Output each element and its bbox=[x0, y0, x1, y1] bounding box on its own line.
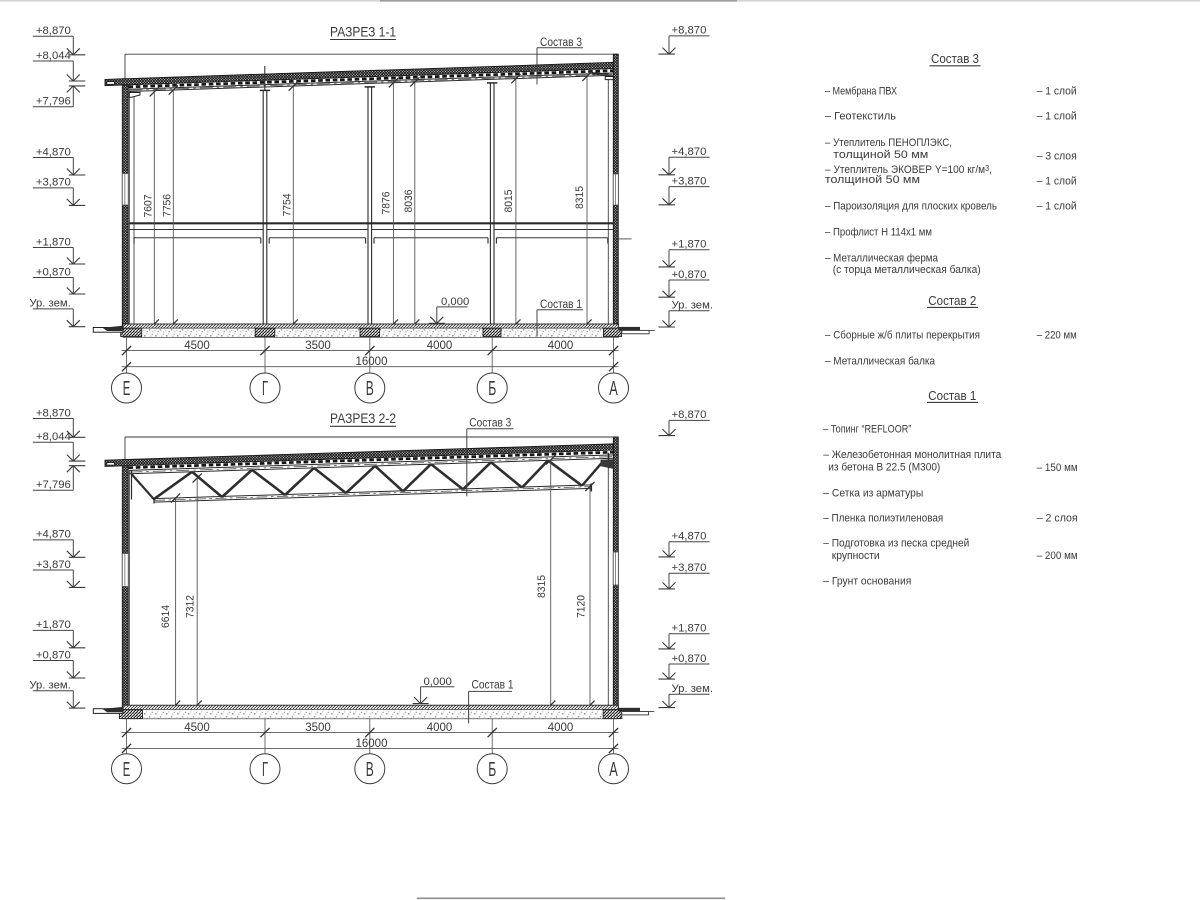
svg-text:7312: 7312 bbox=[184, 595, 196, 618]
svg-text:+3,870: +3,870 bbox=[36, 559, 71, 571]
svg-text:+0,870: +0,870 bbox=[672, 653, 707, 665]
svg-text:+1,870: +1,870 bbox=[36, 619, 71, 631]
svg-text:Состав 3: Состав 3 bbox=[540, 37, 582, 49]
svg-text:РАЗРЕЗ 1-1: РАЗРЕЗ 1-1 bbox=[330, 25, 396, 40]
svg-text:– 1 слой: – 1 слой bbox=[1037, 176, 1077, 188]
svg-text:4000: 4000 bbox=[427, 722, 453, 734]
svg-text:Г: Г bbox=[262, 759, 268, 781]
svg-text:+1,870: +1,870 bbox=[672, 623, 707, 635]
svg-text:толщиной 50 мм: толщиной 50 мм bbox=[833, 149, 928, 161]
svg-text:– Подготовка из песка средней: – Подготовка из песка средней bbox=[823, 537, 969, 549]
svg-text:Ур. зем.: Ур. зем. bbox=[29, 298, 70, 310]
svg-text:7876: 7876 bbox=[381, 192, 393, 215]
svg-text:0,000: 0,000 bbox=[441, 296, 469, 308]
svg-text:4500: 4500 bbox=[184, 340, 210, 352]
svg-text:– 1 слой: – 1 слой bbox=[1037, 111, 1077, 123]
svg-text:8036: 8036 bbox=[403, 190, 415, 213]
svg-text:– Профлист Н 114х1 мм: – Профлист Н 114х1 мм bbox=[825, 227, 932, 239]
svg-text:+7,796: +7,796 bbox=[36, 479, 71, 491]
svg-text:+8,044: +8,044 bbox=[36, 431, 71, 443]
svg-text:8315: 8315 bbox=[536, 575, 548, 598]
svg-text:крупности: крупности bbox=[832, 550, 880, 562]
svg-text:Б: Б bbox=[488, 759, 496, 781]
svg-text:– 3 слоя: – 3 слоя bbox=[1037, 151, 1077, 163]
svg-text:А: А bbox=[609, 378, 618, 400]
svg-text:+8,044: +8,044 bbox=[36, 50, 71, 62]
svg-text:РАЗРЕЗ 2-2: РАЗРЕЗ 2-2 bbox=[330, 411, 396, 426]
svg-text:0,000: 0,000 bbox=[424, 676, 452, 688]
svg-text:4000: 4000 bbox=[427, 340, 453, 352]
svg-text:– 1 слой: – 1 слой bbox=[1037, 201, 1077, 213]
svg-text:– Сборные ж/б плиты перекрытия: – Сборные ж/б плиты перекрытия bbox=[825, 330, 980, 342]
svg-text:8315: 8315 bbox=[574, 186, 586, 209]
svg-text:Состав 1: Состав 1 bbox=[540, 299, 582, 311]
svg-text:+4,870: +4,870 bbox=[672, 531, 707, 543]
svg-text:Г: Г bbox=[262, 378, 268, 400]
svg-text:7120: 7120 bbox=[575, 595, 587, 618]
svg-text:– Металлическая ферма: – Металлическая ферма bbox=[825, 252, 939, 264]
svg-text:Е: Е bbox=[123, 378, 131, 400]
svg-text:Состав 2: Состав 2 bbox=[928, 293, 976, 308]
svg-text:Б: Б bbox=[488, 378, 496, 400]
svg-text:+8,870: +8,870 bbox=[36, 407, 71, 419]
svg-text:– 220 мм: – 220 мм bbox=[1037, 330, 1077, 342]
svg-text:4000: 4000 bbox=[548, 340, 574, 352]
svg-text:Ур. зем.: Ур. зем. bbox=[672, 300, 713, 312]
svg-text:8015: 8015 bbox=[503, 190, 515, 213]
svg-text:– Геотекстиль: – Геотекстиль bbox=[825, 111, 896, 123]
svg-text:+8,870: +8,870 bbox=[672, 25, 707, 37]
svg-text:+4,870: +4,870 bbox=[36, 529, 71, 541]
svg-text:+3,870: +3,870 bbox=[672, 175, 707, 187]
svg-text:7756: 7756 bbox=[161, 194, 173, 217]
svg-text:– 150 мм: – 150 мм bbox=[1037, 462, 1078, 474]
svg-text:Е: Е bbox=[123, 759, 131, 781]
svg-text:Состав 1: Состав 1 bbox=[472, 679, 514, 691]
svg-text:В: В bbox=[366, 759, 374, 781]
svg-text:Состав 3: Состав 3 bbox=[469, 418, 511, 430]
svg-text:+1,870: +1,870 bbox=[36, 236, 71, 248]
svg-text:– Железобетонная монолитная п: – Железобетонная монолитная плита bbox=[823, 449, 1002, 461]
svg-text:(с торца металлическая балка): (с торца металлическая балка) bbox=[833, 264, 981, 276]
svg-text:А: А bbox=[609, 759, 618, 781]
svg-text:+0,870: +0,870 bbox=[36, 649, 71, 661]
svg-text:+3,870: +3,870 bbox=[36, 177, 71, 189]
svg-text:– 2 слоя: – 2 слоя bbox=[1037, 512, 1078, 524]
svg-text:+0,870: +0,870 bbox=[36, 266, 71, 278]
svg-text:Состав 3: Состав 3 bbox=[931, 51, 979, 66]
svg-text:+4,870: +4,870 bbox=[36, 146, 71, 158]
svg-text:+4,870: +4,870 bbox=[672, 146, 707, 158]
svg-text:– Грунт основания: – Грунт основания bbox=[823, 576, 911, 588]
svg-text:– Мембрана ПВХ: – Мембрана ПВХ bbox=[825, 86, 898, 98]
svg-text:– Сетка из арматуры: – Сетка из арматуры bbox=[823, 487, 923, 499]
svg-text:– Металлическая балка: – Металлическая балка bbox=[825, 356, 936, 368]
svg-text:Состав 1: Состав 1 bbox=[928, 388, 976, 403]
svg-text:– Утеплитель ПЕНОПЛЭКС,: – Утеплитель ПЕНОПЛЭКС, bbox=[825, 137, 952, 149]
svg-text:+8,870: +8,870 bbox=[36, 25, 71, 37]
svg-text:4000: 4000 bbox=[548, 722, 574, 734]
svg-text:+8,870: +8,870 bbox=[672, 409, 707, 421]
svg-text:7754: 7754 bbox=[281, 194, 293, 217]
svg-text:+0,870: +0,870 bbox=[672, 269, 707, 281]
svg-text:6614: 6614 bbox=[160, 605, 172, 628]
svg-text:– Пароизоляция для плоских кро: – Пароизоляция для плоских кровель bbox=[825, 201, 997, 213]
svg-text:толщиной 50 мм: толщиной 50 мм bbox=[825, 174, 920, 186]
svg-text:В: В bbox=[366, 378, 374, 400]
svg-text:– 200 мм: – 200 мм bbox=[1037, 550, 1078, 562]
svg-text:16000: 16000 bbox=[356, 356, 388, 368]
svg-text:+1,870: +1,870 bbox=[672, 239, 707, 251]
svg-text:– Пленка полиэтиленовая: – Пленка полиэтиленовая bbox=[823, 512, 943, 524]
svg-text:– 1 слой: – 1 слой bbox=[1037, 86, 1077, 98]
svg-text:3500: 3500 bbox=[305, 340, 331, 352]
svg-text:Ур. зем.: Ур. зем. bbox=[672, 683, 713, 695]
svg-text:16000: 16000 bbox=[356, 738, 388, 750]
svg-text:из бетона В 22.5 (М300): из бетона В 22.5 (М300) bbox=[828, 462, 940, 474]
svg-text:+3,870: +3,870 bbox=[672, 562, 707, 574]
svg-text:+7,796: +7,796 bbox=[36, 96, 71, 108]
svg-text:3500: 3500 bbox=[305, 722, 331, 734]
svg-text:4500: 4500 bbox=[184, 722, 210, 734]
svg-text:7607: 7607 bbox=[143, 195, 155, 218]
svg-text:Ур. зем.: Ур. зем. bbox=[29, 680, 70, 692]
svg-text:– Топинг “REFLOOR”: – Топинг “REFLOOR” bbox=[823, 423, 911, 435]
